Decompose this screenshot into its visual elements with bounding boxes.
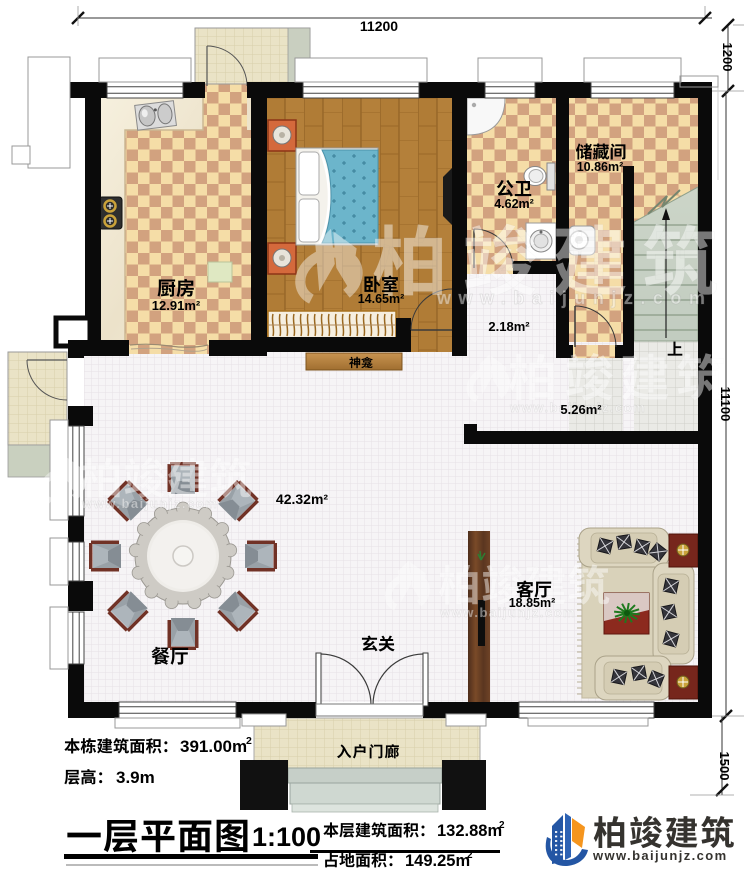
svg-text:2: 2 <box>499 820 505 831</box>
svg-text:www.baijunjz.com: www.baijunjz.com <box>81 496 218 511</box>
svg-text:1:100: 1:100 <box>252 822 321 852</box>
svg-text:1200: 1200 <box>720 43 735 72</box>
svg-text:18.85m²: 18.85m² <box>509 596 556 610</box>
svg-text:132.88m: 132.88m <box>437 822 502 840</box>
svg-text:3.9m: 3.9m <box>116 768 155 787</box>
svg-text:www.baijunjz.com: www.baijunjz.com <box>439 605 576 620</box>
svg-text:5.26m²: 5.26m² <box>560 402 602 417</box>
svg-text:1500: 1500 <box>717 752 732 781</box>
svg-text:10.86m²: 10.86m² <box>577 160 624 174</box>
svg-text:42.32m²: 42.32m² <box>276 491 328 507</box>
svg-text:www.baijunjz.com: www.baijunjz.com <box>592 848 728 863</box>
svg-text:2: 2 <box>467 850 473 861</box>
svg-text:11200: 11200 <box>360 18 398 34</box>
svg-text:12.91m²: 12.91m² <box>152 298 201 313</box>
svg-text:4.62m²: 4.62m² <box>494 197 534 211</box>
svg-text:www.baijunjz.com: www.baijunjz.com <box>436 288 712 308</box>
svg-text:2.18m²: 2.18m² <box>488 319 530 334</box>
svg-text:2: 2 <box>246 735 252 747</box>
svg-text:14.65m²: 14.65m² <box>358 292 405 306</box>
svg-text:391.00m: 391.00m <box>180 737 247 756</box>
svg-text:149.25m: 149.25m <box>405 852 470 870</box>
svg-text:11100: 11100 <box>718 387 733 422</box>
